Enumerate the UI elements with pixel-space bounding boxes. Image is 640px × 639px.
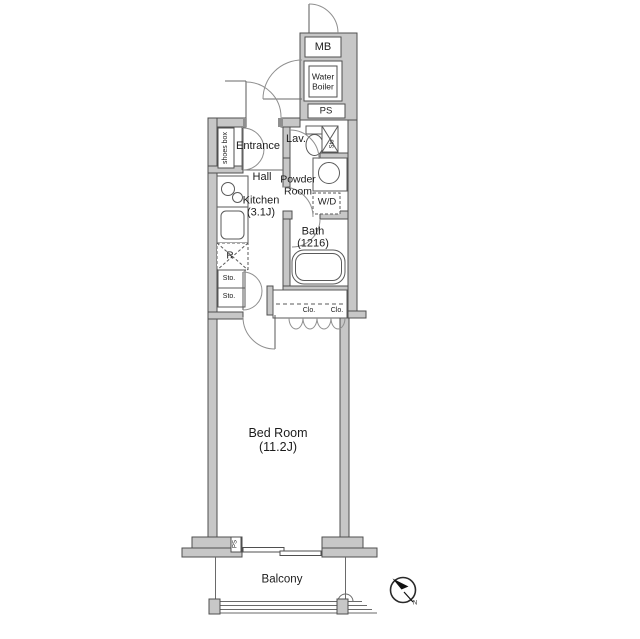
label-entrance: Entrance — [236, 140, 280, 152]
label-ps-top: PS — [320, 107, 333, 118]
balcony-window — [243, 548, 321, 556]
wall-right-fin — [348, 311, 366, 318]
label-balcony: Balcony — [262, 574, 303, 587]
storage-door-lower — [243, 291, 262, 310]
label-lav-storage: Sto — [330, 139, 337, 148]
label-mb: MB — [315, 41, 332, 53]
wall-right-lower — [340, 318, 349, 557]
balcony-post-left — [209, 599, 220, 614]
wall-left — [208, 118, 217, 557]
wall-top-right — [281, 118, 300, 127]
wall-bottom-right — [322, 548, 377, 557]
corridor-door-arc — [309, 4, 338, 33]
label-closet-2: Clo. — [331, 307, 343, 315]
bedroom-door-arc — [243, 317, 275, 349]
toilet-tank — [306, 126, 323, 134]
balcony-post-right — [337, 599, 348, 614]
label-kitchen: Kitchen (3.1J) — [232, 195, 290, 220]
floorplan-drawing — [0, 0, 640, 639]
toilet-bowl — [306, 135, 323, 156]
label-shoes-box: shoes box — [222, 132, 230, 164]
compass-circle — [391, 578, 416, 603]
stove-burner-1 — [222, 183, 235, 196]
label-hall: Hall — [253, 171, 272, 183]
wall-hall-bedroom — [208, 312, 243, 319]
compass — [391, 578, 416, 603]
label-water-boiler: Water Boiler — [306, 72, 340, 91]
storage-door-upper — [243, 272, 262, 291]
label-fridge: R — [226, 250, 233, 261]
label-closet-1: Clo. — [303, 307, 315, 315]
label-lav: Lav. — [286, 133, 306, 145]
label-storage-2: Sto. — [223, 293, 235, 301]
closet-bifold-1 — [289, 318, 303, 329]
floorplan-canvas: MB Water Boiler PS shoes box Entrance La… — [0, 0, 640, 639]
closet-bifold-2 — [303, 318, 317, 329]
door-jambs — [243, 118, 283, 127]
wall-closet-pillar — [267, 286, 273, 315]
label-ps-bottom: PS — [233, 540, 240, 548]
wall-right-upper — [348, 120, 357, 318]
label-wd: W/D — [318, 198, 336, 209]
closet-bifold-3 — [317, 318, 331, 329]
label-compass-north: N — [413, 601, 417, 608]
bath-fixtures — [292, 250, 345, 284]
label-bedroom: Bed Room (11.2J) — [238, 426, 318, 454]
wall-bottom-right-step — [322, 537, 363, 548]
label-bath: Bath (1216) — [288, 226, 338, 251]
boiler-door-arc — [263, 60, 302, 99]
label-storage-1: Sto. — [223, 275, 235, 283]
